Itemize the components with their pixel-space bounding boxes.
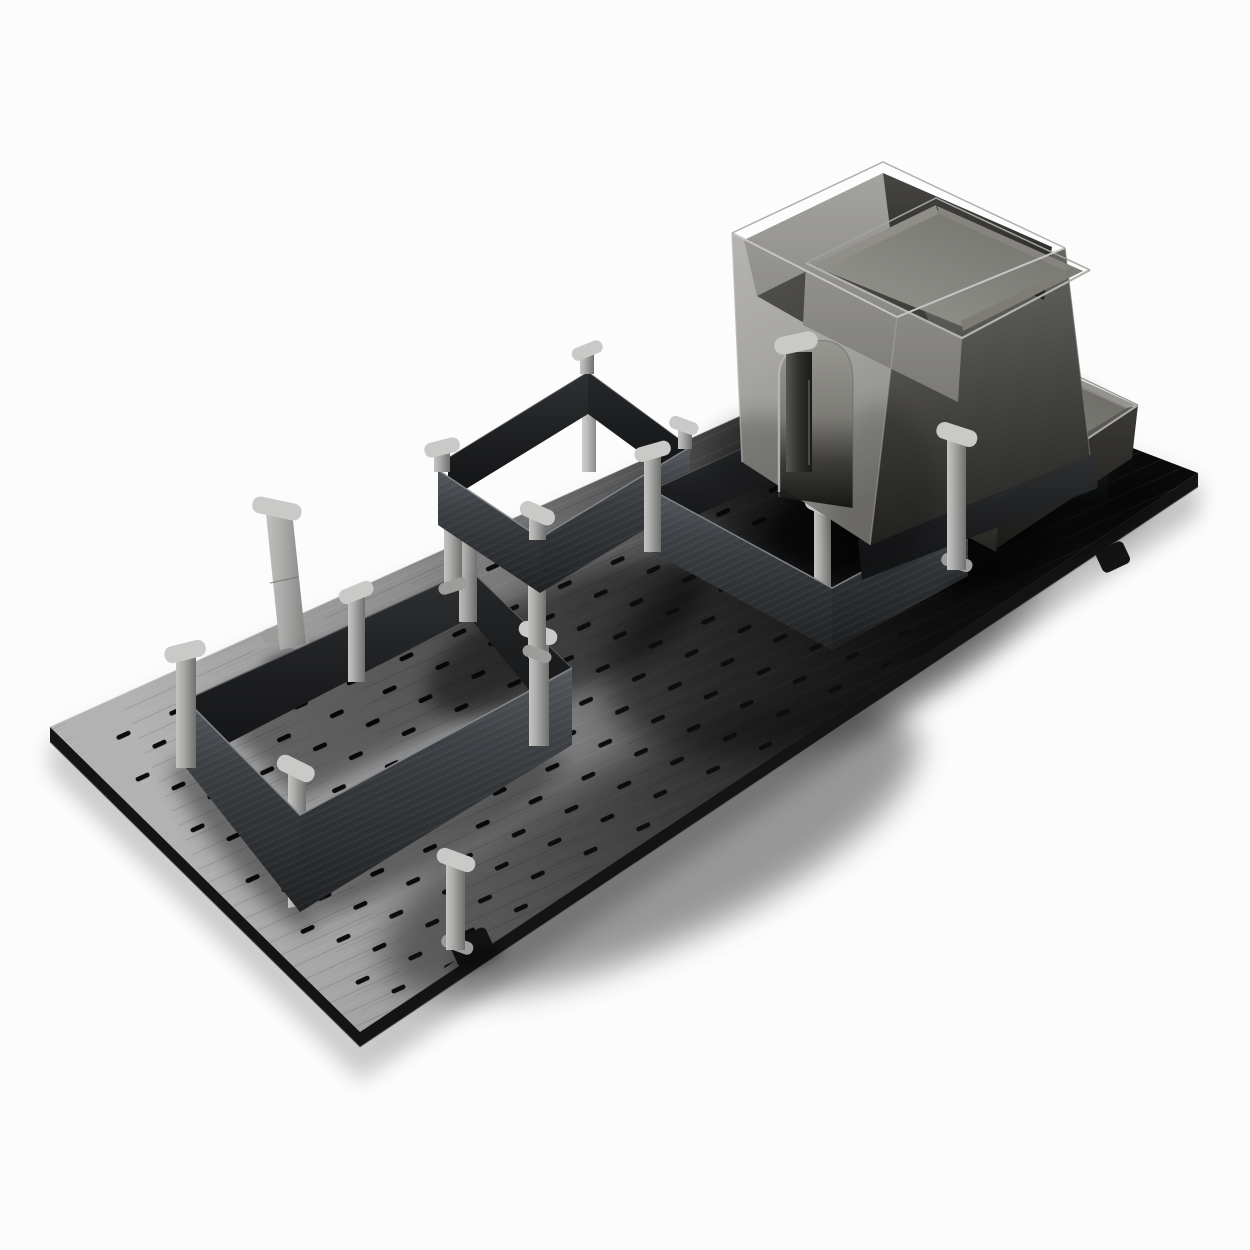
render-canvas bbox=[0, 0, 1250, 1250]
frame3-corner-post-left bbox=[644, 452, 661, 552]
raised-frame-leg-back bbox=[582, 410, 596, 472]
frame1-mid-post-back bbox=[348, 594, 365, 682]
product-photo bbox=[0, 0, 1250, 1250]
loose-post-body bbox=[446, 862, 465, 950]
tray-front-post-body bbox=[947, 436, 966, 570]
frame1-corner-post-left bbox=[176, 652, 196, 768]
